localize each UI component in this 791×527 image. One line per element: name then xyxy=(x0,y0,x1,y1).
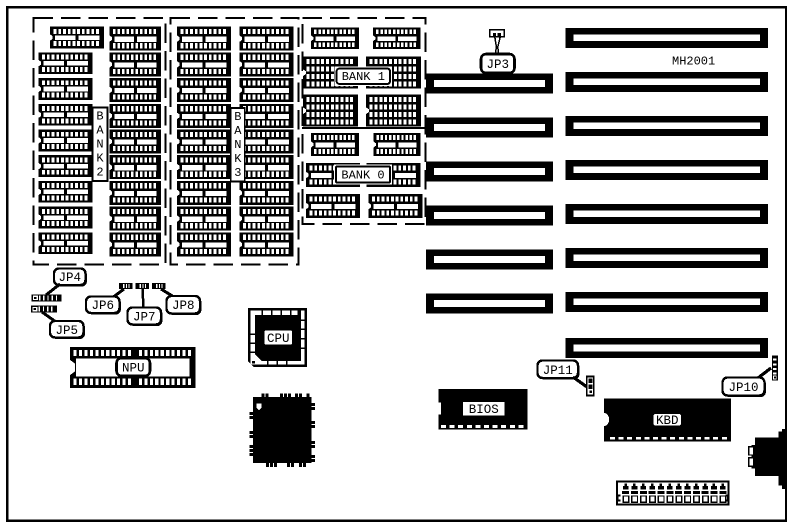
svg-text:N: N xyxy=(234,138,241,152)
svg-text:JP7: JP7 xyxy=(133,311,156,325)
svg-text:BIOS: BIOS xyxy=(469,403,499,417)
svg-text:A: A xyxy=(234,124,242,138)
svg-text:MH2001: MH2001 xyxy=(672,55,715,69)
svg-text:JP10: JP10 xyxy=(728,381,758,395)
svg-text:K: K xyxy=(234,152,242,166)
svg-text:CPU: CPU xyxy=(267,332,290,346)
svg-text:N: N xyxy=(96,138,103,152)
svg-text:JP6: JP6 xyxy=(92,299,115,313)
svg-text:NPU: NPU xyxy=(122,362,145,376)
svg-text:B: B xyxy=(234,110,241,124)
svg-text:3: 3 xyxy=(234,166,241,180)
svg-text:K: K xyxy=(96,152,104,166)
svg-text:BANK 0: BANK 0 xyxy=(341,169,384,183)
svg-text:JP3: JP3 xyxy=(486,58,509,72)
svg-text:KBD: KBD xyxy=(656,414,679,428)
svg-text:JP11: JP11 xyxy=(543,364,573,378)
svg-text:2: 2 xyxy=(96,166,103,180)
svg-text:B: B xyxy=(96,110,103,124)
svg-text:JP4: JP4 xyxy=(59,271,82,285)
svg-text:BANK 1: BANK 1 xyxy=(342,70,385,84)
svg-text:JP8: JP8 xyxy=(172,299,195,313)
svg-text:A: A xyxy=(96,124,104,138)
svg-text:JP5: JP5 xyxy=(56,324,79,338)
